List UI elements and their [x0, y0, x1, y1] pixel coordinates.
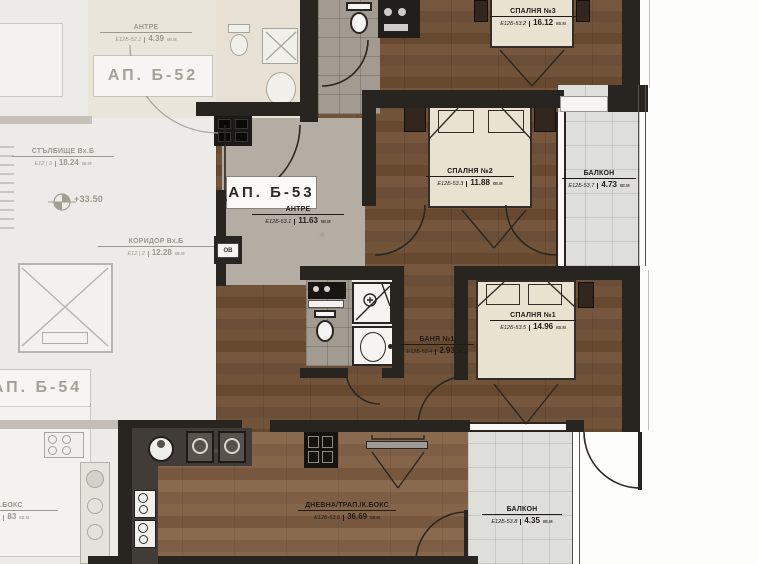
- room-unit: кв.м: [493, 182, 503, 188]
- pillow-icon-bedroom2-right: [488, 110, 524, 133]
- toilet-icon-top-tank: [346, 2, 372, 11]
- room-unit: кв.м: [167, 38, 177, 44]
- toilet-icon-bath1-tank: [314, 310, 336, 318]
- room-code: Е12Б-52.1: [115, 37, 145, 43]
- room-unit: кв.м: [175, 252, 185, 258]
- washing-machine-knob-2: [324, 286, 330, 292]
- apartment-label-text: АП. Б-52: [108, 67, 198, 85]
- facade-line-top-right: [649, 0, 650, 88]
- room-unit: кв.м: [458, 350, 468, 356]
- washbasin-bowl: [360, 332, 386, 362]
- room-code: Е12Б-53.4: [406, 349, 436, 355]
- room-code: Е12Б-53.5: [500, 325, 530, 331]
- room-unit: кв.м: [370, 516, 380, 522]
- room-area: 4.35: [524, 516, 540, 525]
- room-unit: кв.м: [19, 516, 29, 522]
- sink-drain: [157, 440, 165, 448]
- washing-machine-knob-1: [313, 286, 319, 292]
- room-label-bedroom1: СПАЛНЯ №1 Е12Б-53.514.96кв.м: [490, 312, 576, 332]
- room-unit: кв.м: [543, 520, 553, 526]
- room-name: ДНЕВНА/ТРАП./К.БОКС: [298, 502, 396, 510]
- wall: [622, 266, 640, 432]
- wall: [454, 266, 640, 280]
- room-label-antre52: АНТРЕ Е12Б-52.14.39кв.м: [100, 24, 192, 44]
- elevation-label: +33.50: [74, 194, 134, 204]
- faded-stove-burner-2: [62, 435, 71, 444]
- pillow-icon-bedroom2-left: [438, 110, 474, 133]
- door-leaf-living-balcony: [464, 510, 468, 564]
- appliance-knob: [398, 8, 406, 16]
- nightstand-bedroom1-right: [578, 282, 594, 308]
- faded-sink-circle-3: [87, 524, 103, 540]
- room-area: 11.63: [298, 216, 318, 225]
- faded-wall-b54: [0, 420, 118, 429]
- room-name: БАЛКОН: [562, 170, 636, 178]
- room-name: АНТРЕ: [252, 206, 344, 214]
- faded-washbasin-b52: [266, 72, 296, 106]
- faded-wall-topleft: [0, 116, 92, 124]
- tv-icon: [366, 441, 428, 449]
- room-area: 83: [7, 512, 16, 521]
- room-area: 2.93: [439, 346, 455, 355]
- wardrobe-door-4: [235, 132, 248, 142]
- wall: [270, 420, 470, 432]
- faded-room-topleft: [0, 24, 62, 96]
- apartment-label-text: АП. Б-53: [228, 184, 314, 201]
- floor-plan: ОВ: [0, 0, 758, 564]
- faded-sink-circle-2: [87, 498, 103, 514]
- room-area: 18.24: [59, 158, 79, 167]
- room-code: Е12Б: [0, 515, 4, 521]
- room-code: Е12Б-53.8: [491, 519, 521, 525]
- faded-toilet-b52-bowl: [230, 34, 248, 56]
- door-arc-bedroom1-balcony: [584, 432, 640, 488]
- apartment-label-text: АП. Б-54: [0, 379, 82, 397]
- bath1-shelf: [308, 300, 344, 308]
- wall: [362, 108, 376, 206]
- room-unit: кв.м: [82, 162, 92, 168]
- room-label-balcony-bottom: БАЛКОН Е12Б-53.84.35кв.м: [482, 506, 562, 526]
- window-living-balcony: [470, 422, 568, 432]
- room-label-antre53: АНТРЕ Е12Б-53.111.63кв.м: [252, 206, 344, 226]
- wall: [382, 368, 404, 378]
- stove-burner-d: [139, 535, 148, 544]
- balcony-right-railing: [638, 85, 646, 266]
- faded-stove-burner-3: [48, 446, 57, 455]
- cabinet-panel-2: [322, 436, 333, 448]
- wall: [566, 420, 584, 432]
- apartment-label-b53: АП. Б-53: [227, 177, 316, 208]
- room-label-living54: /К.БОКС Е12Б83кв.м: [0, 502, 58, 522]
- room-code: Е12Б-53.2: [500, 21, 530, 27]
- room-label-bedroom2: СПАЛНЯ №2 Е12Б-53.311.88кв.м: [426, 168, 514, 188]
- meter-box: ОВ: [217, 243, 239, 258]
- room-code: Е12Б-53.1: [265, 219, 295, 225]
- stove-burner-b: [139, 505, 148, 514]
- washing-machine-icon-top: [384, 8, 392, 16]
- room-label-corridor: КОРИДОР Вх.Б Е12 | 212.28кв.м: [98, 238, 214, 258]
- meter-box-label: ОВ: [224, 248, 233, 254]
- toilet-icon-bath1-bowl: [316, 320, 334, 342]
- room-area: 11.88: [470, 178, 490, 187]
- wardrobe-door-1: [218, 119, 231, 129]
- shower-icon: [352, 282, 392, 324]
- nightstand-bedroom2-right: [534, 104, 556, 132]
- wall: [300, 266, 404, 280]
- wall: [196, 102, 318, 116]
- apartment-label-b52: АП. Б-52: [94, 56, 212, 96]
- room-code: Е12 | 3: [34, 161, 55, 167]
- stove-burner-c: [138, 523, 148, 533]
- wall: [300, 368, 348, 378]
- apartment-label-b54: АП. Б-54: [0, 370, 90, 406]
- elevation-value: +33.50: [74, 194, 134, 204]
- elevator-counterweight: [42, 332, 88, 344]
- room-name: АНТРЕ: [100, 24, 192, 32]
- room-code: Е12 | 2: [127, 251, 148, 257]
- room-name: БАЛКОН: [482, 506, 562, 514]
- room-unit: кв.м: [556, 22, 566, 28]
- room-label-bedroom3: СПАЛНЯ №3 Е12Б-53.216.12кв.м: [490, 8, 576, 28]
- room-area: 36.69: [347, 512, 367, 521]
- faded-toilet-b52: [228, 24, 250, 33]
- room-name: СПАЛНЯ №2: [426, 168, 514, 176]
- faded-shower-b52: [262, 28, 298, 64]
- room-label-bath1: БАНЯ №1 Е12Б-53.42.93кв.м: [400, 336, 474, 356]
- wardrobe-door-3: [218, 132, 231, 142]
- cabinet-panel-3: [308, 451, 319, 463]
- room-area: 16.12: [533, 18, 553, 27]
- washbasin-faucet: [388, 344, 393, 349]
- room-area: 14.96: [533, 322, 553, 331]
- balcony-sill: [560, 96, 608, 112]
- facade-line-right: [648, 270, 649, 430]
- room-name: СПАЛНЯ №1: [490, 312, 576, 320]
- cooktop-ring-1: [192, 438, 208, 454]
- nightstand-bedroom3-left: [474, 0, 488, 22]
- faded-stove-burner-4: [62, 446, 71, 455]
- room-label-balcony-right: БАЛКОН Е12Б-53.74.73кв.м: [562, 170, 636, 190]
- wall: [454, 280, 468, 380]
- wardrobe-door-2: [235, 119, 248, 129]
- appliance-slot: [384, 24, 408, 31]
- cooktop-ring-2: [224, 438, 240, 454]
- room-name: СПАЛНЯ №3: [490, 8, 576, 16]
- kitchen-counter-top-bath: [378, 0, 420, 38]
- room-area: 12.28: [152, 248, 172, 257]
- room-name: /К.БОКС: [0, 502, 58, 510]
- stove-burner-a: [138, 493, 148, 503]
- wall: [118, 432, 132, 564]
- pillow-icon-bedroom1-left: [486, 284, 520, 305]
- room-code: Е12Б-53.7: [568, 183, 598, 189]
- room-label-living: ДНЕВНА/ТРАП./К.БОКС Е12Б-53.636.69кв.м: [298, 502, 396, 522]
- toilet-icon-top-bowl: [350, 12, 368, 34]
- room-name: СТЪЛБИЩЕ Вх.Б: [12, 148, 114, 156]
- cabinet-panel-4: [322, 451, 333, 463]
- pillow-icon-bedroom1-right: [528, 284, 562, 305]
- balcony-bottom-floor: [468, 432, 572, 564]
- room-code: Е12Б-53.3: [437, 181, 467, 187]
- room-area: 4.39: [148, 34, 164, 43]
- faded-sink-circle-1: [86, 470, 104, 488]
- wall: [362, 90, 564, 108]
- wall: [622, 0, 640, 90]
- room-unit: кв.м: [321, 220, 331, 226]
- faded-stove-burner-1: [48, 435, 57, 444]
- nightstand-bedroom2-left: [404, 104, 426, 132]
- room-area: 4.73: [601, 180, 617, 189]
- door-leaf-balcony-bottom: [638, 432, 642, 490]
- nightstand-bedroom3-right: [576, 0, 590, 22]
- room-unit: кв.м: [620, 184, 630, 190]
- cabinet-panel-1: [308, 436, 319, 448]
- room-code: Е12Б-53.6: [314, 515, 344, 521]
- room-unit: кв.м: [556, 326, 566, 332]
- room-name: КОРИДОР Вх.Б: [98, 238, 214, 246]
- balcony-bottom-railing: [572, 432, 580, 564]
- room-label-stairs: СТЪЛБИЩЕ Вх.Б Е12 | 318.24кв.м: [12, 148, 114, 168]
- room-name: БАНЯ №1: [400, 336, 474, 344]
